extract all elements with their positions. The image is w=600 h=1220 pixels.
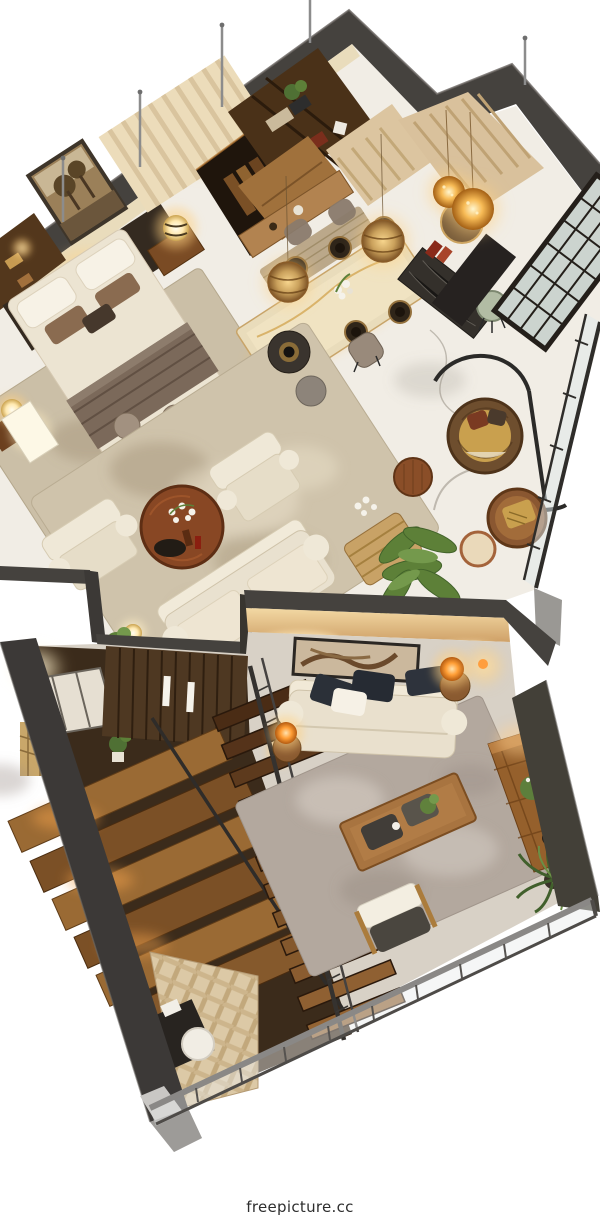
lounge-seat — [461, 532, 495, 566]
white-round-seat — [182, 1028, 214, 1060]
wicker-pendant-lamp — [362, 220, 404, 262]
wicker-pendant-lamp — [268, 262, 308, 302]
orb-pendant — [452, 188, 494, 230]
render-canvas — [0, 0, 600, 1220]
watermark-text: freepicture.cc — [246, 1198, 353, 1216]
upper-floor — [0, 10, 600, 710]
stair-panel-wall — [102, 646, 248, 746]
floorplan-render: freepicture.cc — [0, 0, 600, 1220]
orange-table-lamp — [440, 657, 464, 681]
orange-table-lamp — [275, 722, 297, 744]
lower-floor — [0, 632, 600, 1152]
pouf — [296, 376, 326, 406]
nightstand-lamp-right — [163, 215, 189, 241]
coffee-table-round — [141, 486, 223, 568]
corner-sconce — [478, 659, 488, 669]
